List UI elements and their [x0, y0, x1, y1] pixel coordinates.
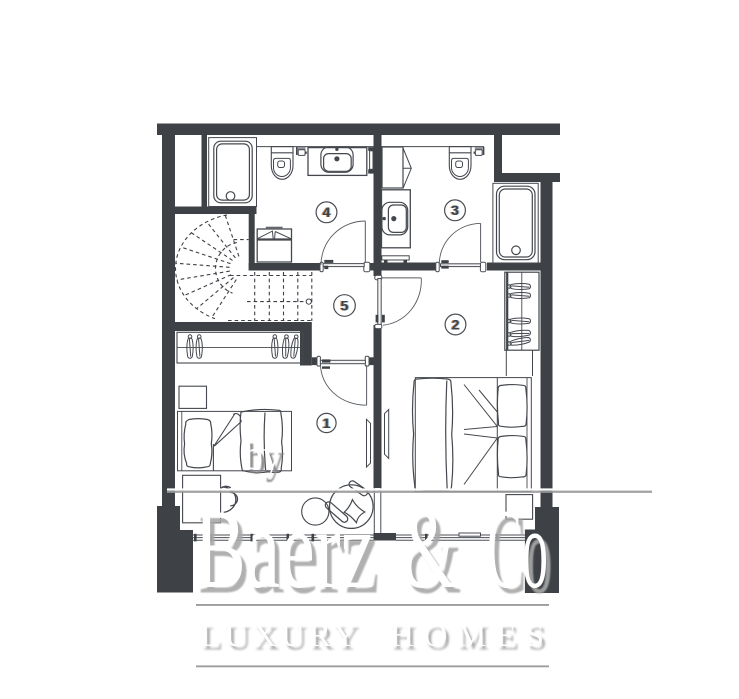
svg-text:Baerz: Baerz	[194, 487, 375, 612]
svg-text:2: 2	[452, 316, 460, 332]
svg-text:4: 4	[323, 204, 331, 220]
svg-text:Co: Co	[487, 487, 548, 612]
svg-text:1: 1	[323, 415, 331, 431]
svg-text:5: 5	[341, 297, 349, 313]
svg-text:by: by	[245, 432, 282, 479]
svg-text:LUXURY: LUXURY	[200, 618, 361, 654]
svg-text:&: &	[402, 487, 457, 612]
svg-text:3: 3	[451, 202, 459, 218]
